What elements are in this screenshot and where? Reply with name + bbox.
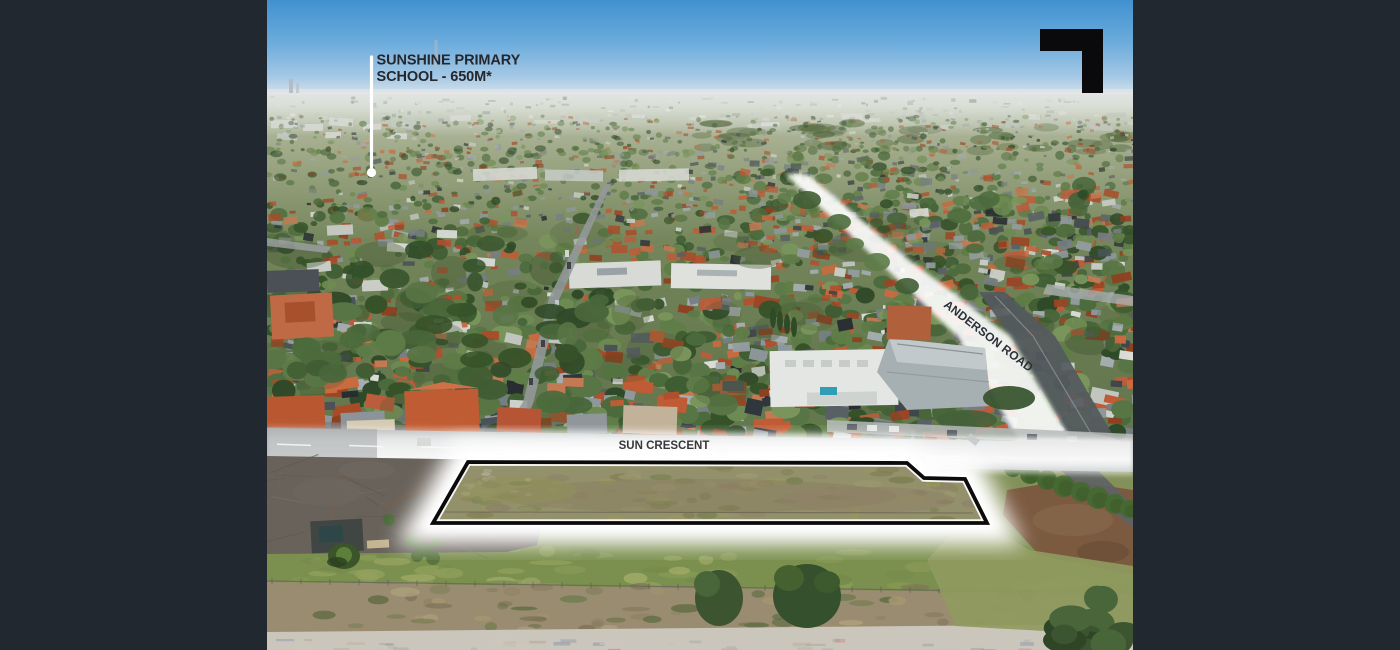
- svg-text:SCHOOL - 650M*: SCHOOL - 650M*: [377, 69, 493, 85]
- svg-text:SUN CRESCENT: SUN CRESCENT: [619, 440, 710, 452]
- svg-text:SUNSHINE PRIMARY: SUNSHINE PRIMARY: [377, 53, 521, 69]
